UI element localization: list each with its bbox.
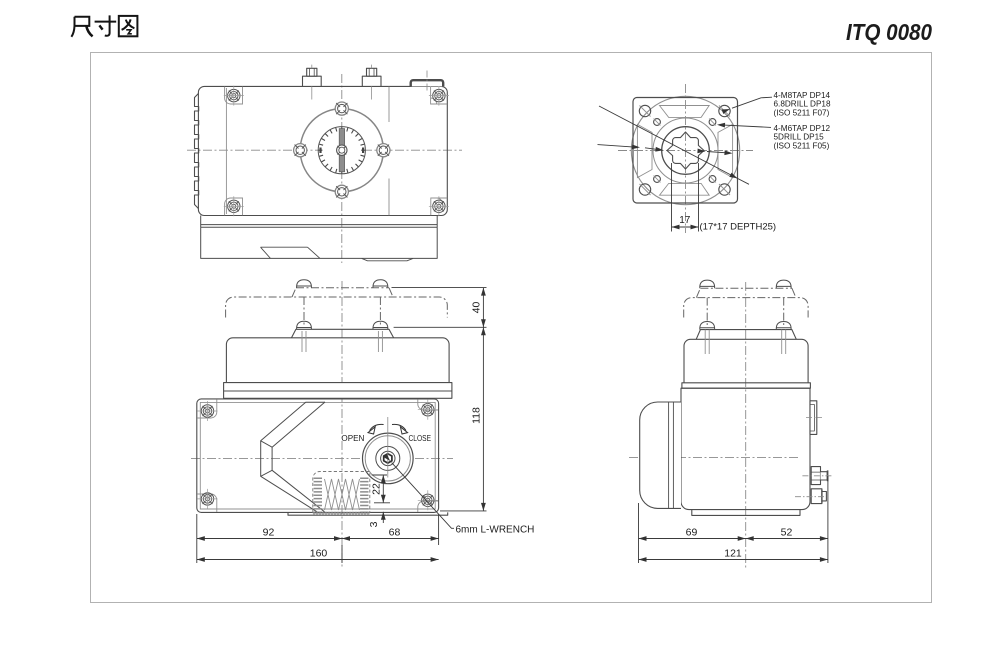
- svg-text:ITQ 0080: ITQ 0080: [846, 19, 932, 45]
- svg-text:92: 92: [263, 527, 275, 539]
- svg-text:52: 52: [781, 527, 793, 539]
- svg-text:69: 69: [686, 527, 698, 539]
- svg-text:40: 40: [471, 302, 483, 314]
- svg-text:17: 17: [679, 215, 691, 226]
- svg-text:OPEN: OPEN: [341, 433, 364, 443]
- svg-text:118: 118: [471, 407, 483, 424]
- svg-text:5DRILL DP15: 5DRILL DP15: [774, 133, 825, 142]
- svg-text:(ISO 5211 F05): (ISO 5211 F05): [774, 142, 830, 151]
- svg-text:(17*17 DEPTH25): (17*17 DEPTH25): [700, 222, 777, 233]
- svg-text:160: 160: [310, 548, 328, 560]
- svg-text:22: 22: [371, 483, 383, 495]
- svg-text:121: 121: [724, 548, 742, 560]
- svg-text:68: 68: [389, 527, 401, 539]
- svg-text:6.8DRILL DP18: 6.8DRILL DP18: [774, 100, 831, 109]
- svg-text:(ISO 5211 F07): (ISO 5211 F07): [774, 109, 830, 118]
- svg-text:3: 3: [368, 521, 380, 527]
- svg-text:CLOSE: CLOSE: [409, 433, 432, 443]
- svg-text:6mm L-WRENCH: 6mm L-WRENCH: [456, 525, 535, 536]
